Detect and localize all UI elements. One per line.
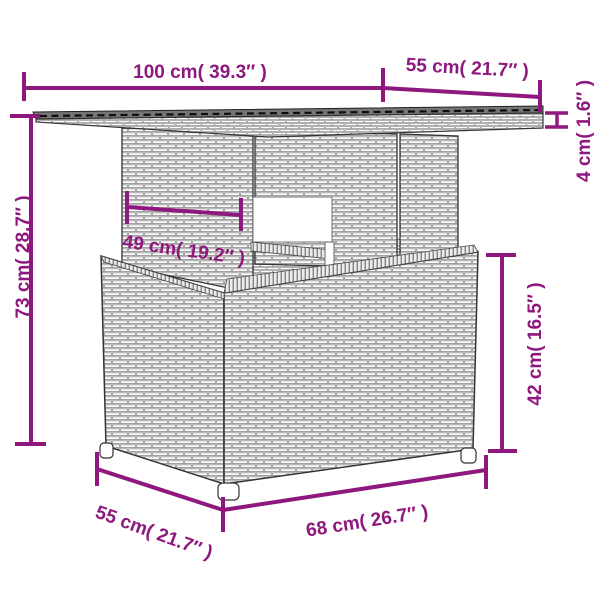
pedestal-window-cutout [253, 197, 332, 242]
dimension-top-width: 100 cm( 39.3″ ) [24, 62, 383, 102]
dimension-total-height: 73 cm( 28.7″ ) [10, 116, 46, 444]
dimension-top-depth: 55 cm( 21.7″ ) [383, 55, 540, 112]
dimension-base-depth-label: 55 cm( 21.7″ ) [92, 502, 215, 564]
dimension-top-width-label: 100 cm( 39.3″ ) [133, 62, 267, 83]
dimension-base-width-label: 68 cm( 26.7″ ) [305, 502, 430, 542]
pedestal-right-leg [400, 134, 458, 266]
base-foot-right [461, 448, 476, 463]
dimension-top-thickness-label: 4 cm( 1.6″ ) [574, 80, 595, 182]
diagram-canvas: 100 cm( 39.3″ ) 55 cm( 21.7″ ) 4 cm( 1.6… [0, 0, 600, 600]
table-drawing [33, 106, 543, 500]
dimension-total-height-label: 73 cm( 28.7″ ) [13, 195, 34, 318]
base-foot-left [100, 443, 113, 458]
dimension-top-thickness: 4 cm( 1.6″ ) [545, 80, 595, 182]
dimension-base-height: 42 cm( 16.5″ ) [486, 255, 546, 451]
furniture-dimension-diagram: 100 cm( 39.3″ ) 55 cm( 21.7″ ) 4 cm( 1.6… [0, 0, 600, 600]
dimension-top-depth-label: 55 cm( 21.7″ ) [405, 55, 529, 82]
dimension-base-height-label: 42 cm( 16.5″ ) [525, 282, 546, 405]
